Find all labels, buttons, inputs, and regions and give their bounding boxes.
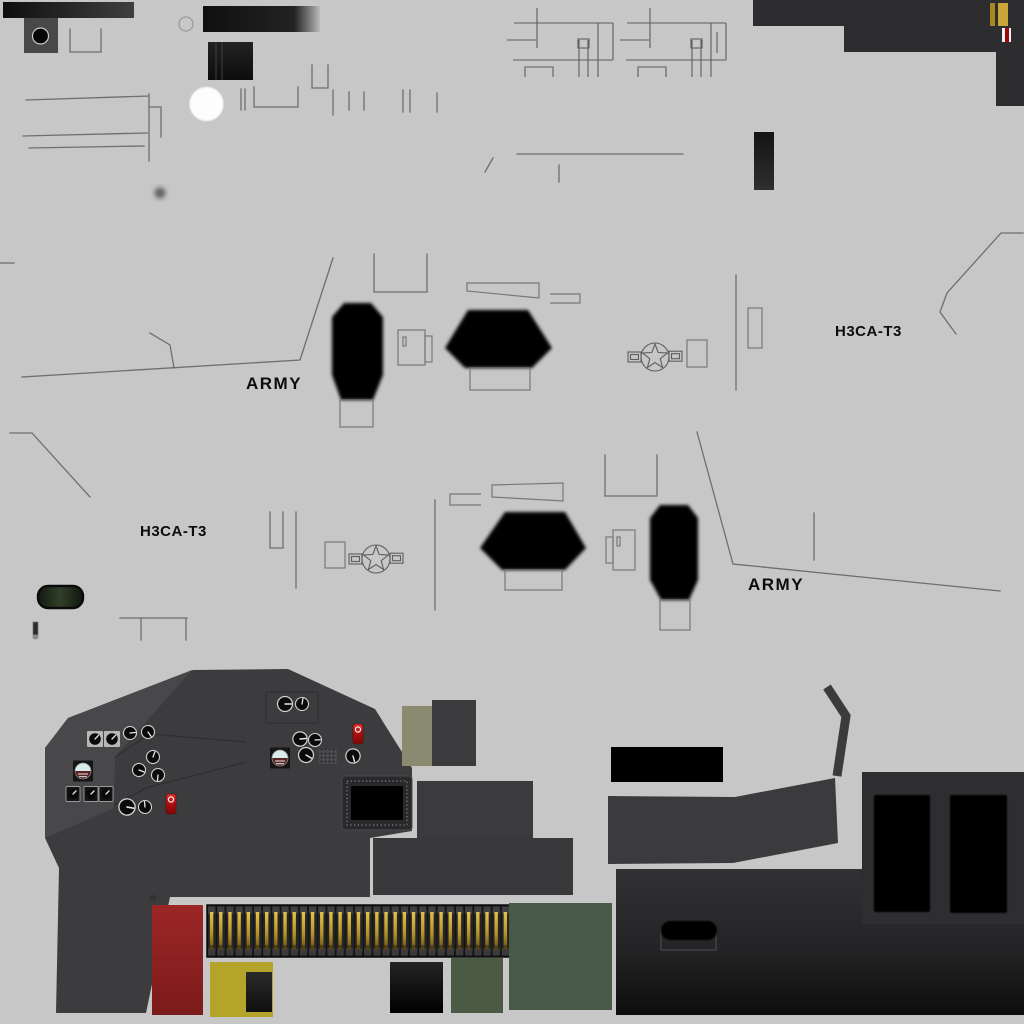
gauge [99,787,113,802]
green-swatch-large [509,903,612,1010]
attitude-indicator [270,748,290,769]
star-roundel-icon [628,343,682,371]
army-marking-upper: ARMY [246,374,302,393]
green-swatch-small [451,958,503,1013]
rotor-hub-strip [3,2,134,53]
smudge-dot [155,188,166,199]
gauge [84,787,98,802]
cargo-window-hexagon [480,512,586,570]
gauge [66,787,80,802]
red-switch [166,794,176,814]
fuselage-side-upper [22,254,762,427]
canopy-frame-block [753,0,1024,106]
tail-boom-lines [0,94,161,263]
door-handle-outline [606,530,635,570]
window-frame-panel [862,772,1024,924]
exhaust-strip [179,6,320,80]
h3ca-marking-lower: H3CA-T3 [140,523,207,540]
gauge [87,731,103,747]
texture-atlas-sheet: ARMY H3CA-T3 H3CA-T3 ARMY [0,0,1024,1024]
gauge [104,731,120,747]
cabin-window-octagon [650,505,698,600]
toggle-lever [33,622,39,640]
console-slab-lower [373,838,573,895]
h3ca-marking-upper: H3CA-T3 [835,323,902,340]
step-bracket-lines [120,618,187,640]
vent-strip [754,132,774,190]
texture-canvas: ARMY H3CA-T3 H3CA-T3 ARMY [0,0,1024,1024]
cockpit-instrument-panel [45,669,412,1013]
dark-box [432,700,476,766]
console-slab-upper [417,781,533,838]
door-handle-outline [398,330,432,365]
gold-stripe-narrow [990,3,995,26]
ammo-belt [207,905,510,957]
cabin-window-octagon [332,303,383,400]
windshield-cutout [950,795,1007,913]
gun-sight-pill [38,586,83,608]
red-stripe [1005,28,1009,42]
engine-deck-panel-lines [485,8,726,182]
small-fitting-lines [241,65,437,115]
nose-contour-line [940,233,1023,334]
radar-crt-display [342,776,412,830]
gold-stripe-wide [998,3,1008,26]
black-insert [611,747,723,782]
red-switch [353,724,363,744]
red-fabric-swatch [152,905,203,1015]
attitude-indicator [73,761,93,782]
tiny-swatch [150,895,156,901]
landing-light-disc [190,87,224,121]
army-marking-lower: ARMY [748,575,804,594]
olive-box [402,706,432,766]
black-swatch [390,962,443,1013]
windshield-cutout [874,795,930,912]
yellow-swatch [210,962,273,1017]
cargo-window-hexagon [445,310,552,368]
star-roundel-icon [349,545,403,573]
hub-hole [33,28,49,44]
